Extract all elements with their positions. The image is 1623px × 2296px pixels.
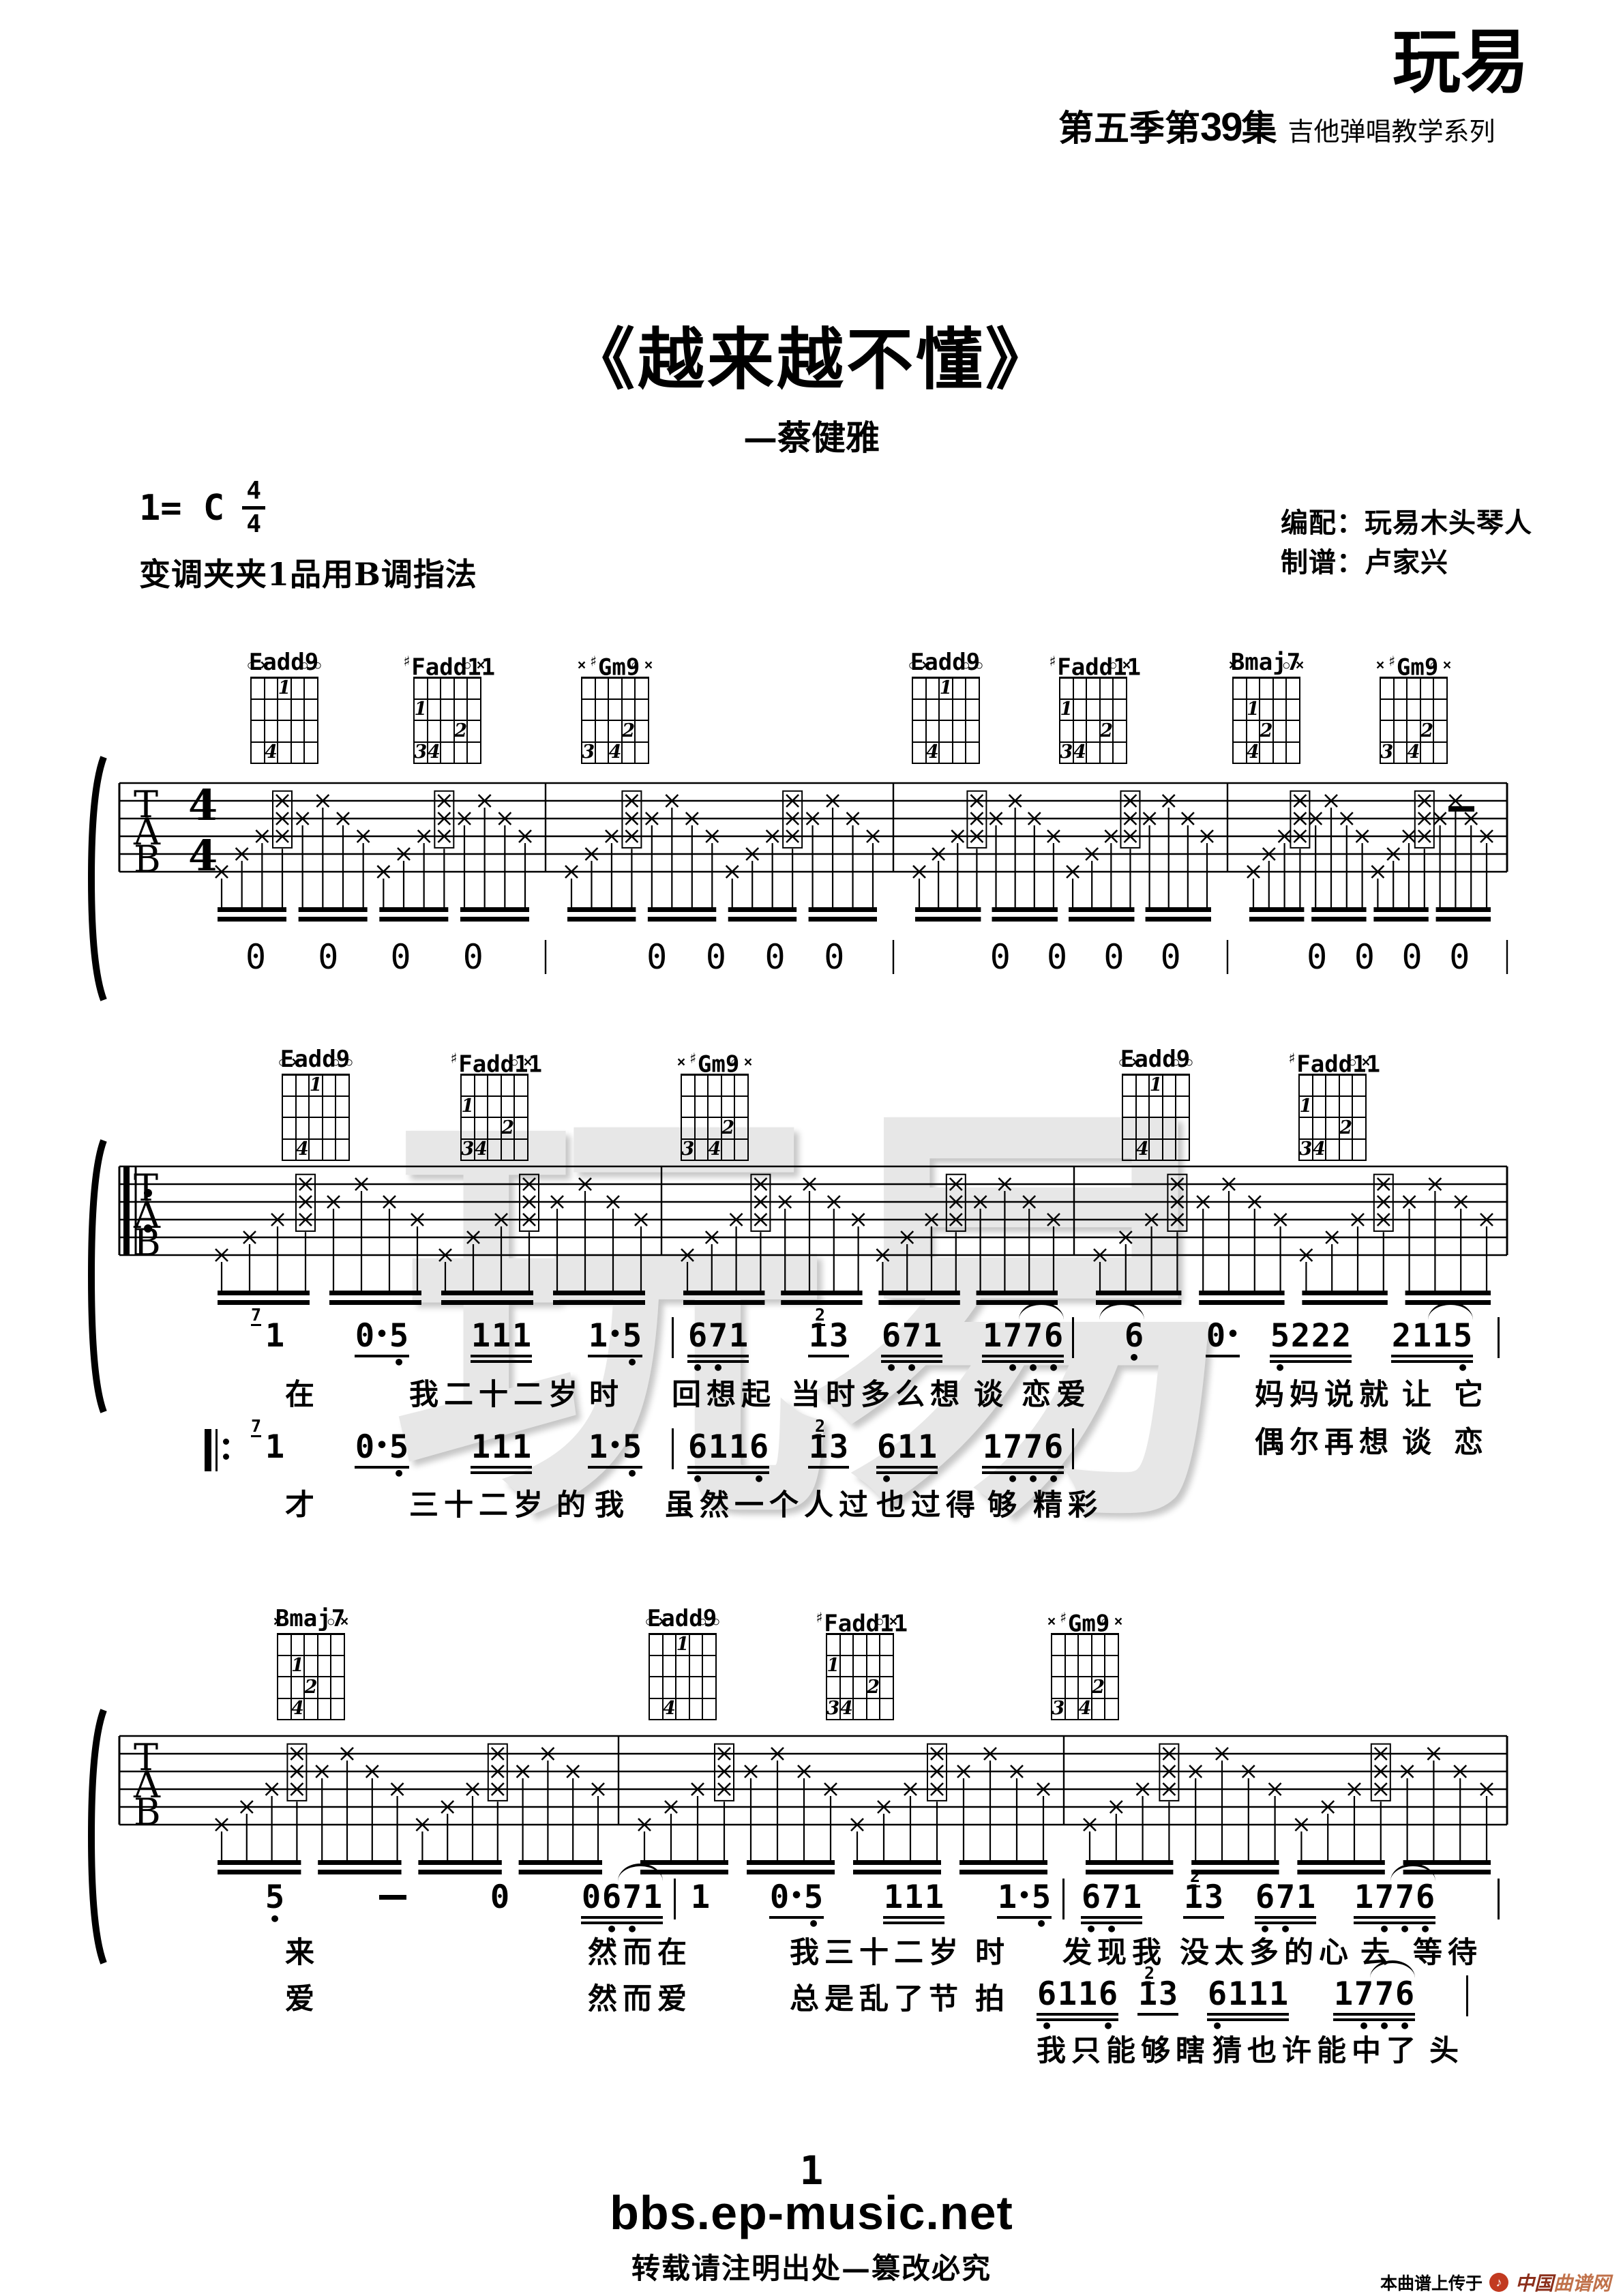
fret-line: [826, 1676, 894, 1677]
note-group-seg: 611•: [876, 1431, 938, 1486]
beam: [809, 907, 877, 912]
lyric-segment: 没太多的心: [1180, 1929, 1354, 1971]
open-string-zero: 0: [765, 937, 786, 977]
note-group: 0: [490, 1881, 510, 1914]
beam: [878, 1300, 959, 1305]
open-string-marker: ○: [297, 658, 311, 673]
finger-number: 2: [1092, 1678, 1105, 1696]
beam-underline: [1137, 2013, 1178, 2016]
note-digit: 1: [982, 1320, 1002, 1353]
note-group-seg: 1: [690, 1881, 711, 1914]
beam: [218, 907, 286, 912]
octave-dot: [1017, 1919, 1031, 1931]
note-digit: 1: [1122, 1881, 1142, 1914]
beam: [379, 917, 448, 922]
muted-string-marker: ×: [1045, 1615, 1058, 1630]
episode-number: 39: [1200, 104, 1242, 150]
note-digit: 6: [749, 1431, 769, 1464]
lyric-segment: 猜也许能中了: [1212, 2027, 1421, 2070]
octave-dot: •: [622, 1357, 642, 1370]
muted-string-marker: ×: [1293, 658, 1307, 673]
chord-grid: ×○×124: [277, 1633, 344, 1719]
chord-grid: ○×○○14: [282, 1074, 348, 1160]
beam: [553, 1300, 645, 1305]
fret-line: [1122, 1160, 1190, 1161]
beam: [1069, 907, 1134, 912]
lyric-segment: 然而在: [588, 1929, 692, 1971]
beam: [747, 1870, 835, 1874]
chord-grid: ×○×124: [1232, 677, 1299, 763]
note-group: 132: [1183, 1881, 1224, 1919]
open-string-marker: ○: [244, 658, 258, 673]
chord-diagram: ♯Fadd11○×1234: [449, 1045, 538, 1160]
fret-line: [1122, 1138, 1190, 1140]
time-sig-denominator: 4: [188, 831, 218, 881]
note-digit: 1: [1248, 1978, 1268, 2011]
fret-line: [1298, 1074, 1367, 1076]
lyric-segment: 恋爱: [1022, 1371, 1091, 1413]
lyric-segment: 回想起: [672, 1371, 776, 1413]
fret-line: [1380, 677, 1448, 679]
song-artist: —蔡健雅: [0, 411, 1623, 460]
note-digit: 1: [728, 1320, 749, 1353]
series-tagline: 吉他弹唱教学系列: [1288, 111, 1495, 148]
beam: [567, 917, 636, 922]
tab-clef-letter: B: [134, 1221, 161, 1264]
finger-number: 1: [1299, 1097, 1313, 1115]
finger-number: 2: [1420, 722, 1434, 740]
beam-underline: [883, 1916, 944, 1919]
note-digit: 1: [1333, 1978, 1354, 2011]
chord-grid: ○×○○14: [649, 1633, 715, 1719]
fret-line: [250, 741, 318, 743]
note-digit: 6: [1207, 1978, 1227, 2011]
note-group: 671••: [1255, 1881, 1316, 1937]
note-digits: 0671: [581, 1881, 663, 1914]
note-digit: 7: [1354, 1978, 1374, 2011]
note-digits: 5: [265, 1881, 285, 1914]
beam: [1373, 917, 1428, 922]
chord-grid: ○×1234: [1059, 677, 1126, 763]
note-digits: 111: [471, 1320, 532, 1353]
chord-diagram: Eadd9○×○○14: [638, 1604, 726, 1719]
muted-string-marker: ×: [642, 658, 655, 673]
series-suffix: 集: [1242, 100, 1277, 151]
fret-line: [912, 741, 980, 743]
note-digit: 6: [1081, 1881, 1101, 1914]
lyric-segment: 谈: [974, 1371, 1009, 1413]
measure-bar: [1498, 1879, 1500, 1919]
fret-line: [1051, 1655, 1119, 1656]
note-group: 671••: [1081, 1881, 1142, 1937]
note-group: 132: [808, 1431, 849, 1469]
fret-line: [649, 1655, 717, 1656]
note-digit: 5: [1270, 1320, 1290, 1353]
note-digit: 1: [1412, 1320, 1432, 1353]
note-digit: 6: [1043, 1320, 1064, 1353]
chord-diagram: Eadd9○×○○14: [1111, 1045, 1200, 1160]
open-string-marker: ○: [1279, 658, 1293, 673]
note-group-seg: 671••: [1081, 1881, 1142, 1937]
note-digit: 5: [389, 1431, 409, 1464]
lyric-segment: 爱: [285, 1975, 320, 2018]
chord-diagram: Bmaj7×○×124: [266, 1604, 355, 1719]
octave-dots-row: •: [355, 1357, 409, 1370]
note-digit: 7: [1275, 1881, 1296, 1914]
chord-diagram: ♯Gm9×○×234: [570, 648, 659, 763]
chord-diagram: ♯Fadd11○×1234: [402, 648, 491, 763]
note-digit: 5: [1031, 1881, 1052, 1914]
measure-bar: [1062, 1879, 1064, 1919]
fret-line: [413, 720, 481, 721]
note-digit: 6: [881, 1320, 902, 1353]
note-digits: 1776: [982, 1431, 1064, 1464]
fraction-bar: [242, 506, 265, 510]
qupu-site-icon: ♪: [1489, 2273, 1508, 2292]
note-digit: 1: [924, 1881, 944, 1914]
note-group-seg: 671••: [1255, 1881, 1316, 1937]
fret-line: [681, 1160, 749, 1161]
note-digit: 1: [690, 1881, 711, 1914]
muted-string-marker: ×: [1112, 1615, 1125, 1630]
note-digit: 7: [1374, 1978, 1395, 2011]
chord-grid: ○×1234: [1298, 1074, 1365, 1160]
beam: [218, 917, 286, 922]
beam: [915, 907, 981, 912]
open-string-marker: ○: [324, 1615, 338, 1630]
open-string-marker: ○: [642, 1615, 656, 1630]
finger-number: 4: [708, 1140, 721, 1158]
lyric-segment: 拍: [975, 1975, 1010, 2018]
finger-number: 2: [721, 1119, 735, 1137]
upload-credit-line: 本曲谱上传于 ♪ 中国曲谱网: [1380, 2269, 1611, 2296]
octave-dot: •: [389, 1357, 409, 1370]
note-digit: 2: [1311, 1320, 1331, 1353]
chord-grid: ○×1234: [460, 1074, 527, 1160]
measure-bar: [672, 1317, 674, 1358]
chord-grid: ×○×234: [1380, 677, 1446, 763]
note-digit: 1: [491, 1431, 511, 1464]
octave-dot: [355, 1357, 375, 1370]
fret-line: [581, 763, 649, 764]
note-group: 0•5•: [355, 1431, 409, 1481]
tab-clef-letter: B: [134, 1791, 161, 1834]
note-group: 17: [265, 1320, 285, 1353]
tab-clef-letter: B: [134, 838, 161, 881]
time-sig-numerator: 4: [188, 780, 218, 830]
fret-line: [581, 698, 649, 700]
beam: [441, 1300, 533, 1305]
system-bracket: [91, 757, 104, 1000]
duration-dash: [379, 1895, 406, 1900]
finger-number: 1: [414, 700, 428, 718]
note-group-seg: 0•5•: [769, 1881, 824, 1931]
muted-string-marker: ×: [1359, 1055, 1373, 1070]
lyric-segment: 的: [556, 1482, 591, 1524]
augmentation-dot: •: [1017, 1881, 1031, 1914]
finger-number: 4: [1312, 1140, 1326, 1158]
sharp-sign: ♯: [1059, 1610, 1068, 1627]
finger-number: 3: [461, 1140, 475, 1158]
note-digit: 0: [581, 1881, 601, 1914]
chord-diagram: Eadd9○×○○14: [901, 648, 989, 763]
note-group: 1776•••: [1333, 1978, 1415, 2033]
note-digits: 6116: [1037, 1978, 1118, 2011]
repeat-thick-bar: [123, 1166, 130, 1255]
open-string-marker: ○: [628, 658, 642, 673]
finger-number: 1: [1060, 700, 1073, 718]
beam: [299, 907, 368, 912]
note-digit: 7: [902, 1320, 922, 1353]
beam: [418, 1870, 501, 1874]
beam: [878, 1291, 959, 1295]
chord-diagram: ♯Gm9×○×234: [670, 1045, 758, 1160]
beam: [1249, 907, 1304, 912]
note-digits: 2115: [1391, 1320, 1473, 1353]
note-digits: 1776: [982, 1320, 1064, 1353]
finger-number: 3: [827, 1699, 840, 1718]
finger-number: 3: [582, 743, 595, 761]
beam: [218, 1291, 310, 1295]
note-digit: 5: [803, 1881, 824, 1914]
note-digit: 17: [265, 1431, 285, 1464]
beam: [553, 1291, 645, 1295]
lyric-segment: 才: [285, 1482, 320, 1524]
beam: [640, 1860, 728, 1865]
note-group: 6•: [1124, 1320, 1144, 1365]
beam: [1436, 917, 1491, 922]
note-digits: 0: [490, 1881, 510, 1914]
sharp-sign: ♯: [1287, 1050, 1296, 1068]
lyric-segment: 偶尔再想: [1255, 1419, 1394, 1461]
qupu-site-name-1: 中国: [1515, 2273, 1553, 2294]
octave-dot: [769, 1919, 790, 1931]
note-digit: 6: [687, 1431, 708, 1464]
note-group-seg: 6116••: [687, 1431, 769, 1486]
beam: [1311, 917, 1366, 922]
beam: [1069, 917, 1134, 922]
open-string-zero: 0: [1047, 937, 1067, 977]
measure-bar: [672, 1428, 674, 1469]
note-group-seg: 2115•: [1391, 1320, 1473, 1375]
finger-number: 2: [1339, 1119, 1353, 1137]
note-digits: 132: [808, 1431, 849, 1464]
note-group: 111: [471, 1431, 532, 1474]
muted-string-marker: ×: [338, 1615, 351, 1630]
beam: [1086, 1870, 1173, 1874]
open-string-zero: 0: [706, 937, 726, 977]
note-digits: 6: [1124, 1320, 1144, 1353]
fret-line: [681, 1074, 749, 1076]
fret-line: [1380, 720, 1448, 721]
open-string-marker: ○: [1345, 1055, 1359, 1070]
note-digits: 671: [1255, 1881, 1316, 1914]
sharp-sign: ♯: [815, 1610, 824, 1627]
finger-number: 4: [1407, 743, 1420, 761]
note-group-seg: 0671••: [581, 1881, 663, 1937]
fret-line: [681, 1095, 749, 1097]
note-digit: 2: [1290, 1320, 1311, 1353]
key-signature: 1= C 4 4: [139, 479, 265, 537]
fret-line: [912, 720, 980, 721]
chord-diagram: Eadd9○×○○14: [271, 1045, 359, 1160]
note-digit: 6: [687, 1320, 708, 1353]
fret-line: [250, 698, 318, 700]
note-digits: 1•5: [997, 1881, 1052, 1914]
credits: 编配：玩易木头琴人 制谱：卢家兴: [1281, 503, 1532, 583]
octave-dot: •: [622, 1469, 642, 1481]
fret-line: [1051, 1633, 1119, 1635]
beam: [853, 1870, 941, 1874]
note-digit: 5: [1453, 1320, 1473, 1353]
lyric-segment: 谈: [1402, 1419, 1437, 1461]
fret-line: [277, 1655, 345, 1656]
fret-line: [282, 1160, 350, 1161]
fret-line: [250, 720, 318, 721]
note-digit: 1: [1354, 1881, 1374, 1914]
note-group-seg: 1776•••: [982, 1431, 1064, 1486]
octave-dot: [355, 1469, 375, 1481]
open-string-zero: 0: [463, 937, 483, 977]
augmentation-dot: •: [608, 1320, 622, 1353]
lyric-segment: 然而爱: [588, 1975, 692, 2018]
finger-number: 1: [461, 1097, 475, 1115]
half-rest-dash: [1448, 806, 1474, 812]
note-digit: 1: [922, 1320, 942, 1353]
lyric-segment: 我二十二岁: [409, 1371, 583, 1413]
fret-line: [282, 1095, 350, 1097]
note-group: 0•5•: [769, 1881, 824, 1931]
lyric-segment: 精彩: [1033, 1482, 1103, 1524]
fret-line: [413, 677, 481, 679]
open-string-zero: 0: [1354, 937, 1375, 977]
note-digit: 0: [1206, 1320, 1226, 1353]
beam: [683, 1300, 764, 1305]
open-string-marker: ○: [507, 1055, 521, 1070]
beam: [1311, 907, 1366, 912]
lyric-segment: 妈妈说就: [1255, 1371, 1394, 1413]
note-digits: 0•5: [355, 1431, 409, 1464]
fret-line: [282, 1138, 350, 1140]
finger-number: 1: [827, 1656, 840, 1675]
beam-underline: [581, 1916, 663, 1919]
note-group: 17: [265, 1431, 285, 1464]
chord-diagram: ♯Gm9×○×234: [1369, 648, 1457, 763]
chord-grid: ○×○○14: [912, 677, 979, 763]
note-digit: 7: [1101, 1881, 1122, 1914]
beam-underline: [471, 1466, 532, 1469]
note-group: 1•5•: [997, 1881, 1052, 1931]
measure-bar: [674, 1879, 676, 1919]
note-digit: 1: [917, 1431, 938, 1464]
beam-underline: [808, 1355, 849, 1357]
note-group-seg: 6111•: [1207, 1978, 1289, 2033]
note-group: 5•: [265, 1881, 285, 1926]
beam: [1297, 1870, 1384, 1874]
note-group-seg: 1•5•: [588, 1320, 642, 1370]
open-string-marker: ○: [1182, 1055, 1196, 1070]
note-group-seg: 1•5•: [588, 1431, 642, 1481]
note-digit: 5: [622, 1320, 642, 1353]
finger-number: 1: [939, 679, 953, 697]
lyric-segment: 我三十二岁: [790, 1929, 964, 1971]
note-group-seg: 5•: [265, 1881, 285, 1926]
open-string-marker: ○: [460, 658, 474, 673]
muted-string-marker: ×: [289, 1055, 303, 1070]
beam: [379, 907, 448, 912]
chord-diagram: ♯Fadd11○×1234: [815, 1604, 904, 1719]
octave-dot: [608, 1469, 622, 1481]
note-digits: 111: [883, 1881, 944, 1914]
note-digit: 0: [355, 1320, 375, 1353]
open-string-zero: 0: [1449, 937, 1470, 977]
octave-dot: [375, 1469, 389, 1481]
beam: [1096, 1291, 1181, 1295]
fret-line: [649, 1698, 717, 1699]
chord-diagram: Eadd9○×○○14: [239, 648, 328, 763]
beam: [648, 907, 716, 912]
muted-string-marker: ×: [887, 1615, 900, 1630]
time-numerator: 4: [246, 479, 261, 503]
fret-line: [649, 1719, 717, 1720]
lyric-segment: 等待: [1413, 1929, 1483, 1971]
open-string-marker: ○: [311, 658, 325, 673]
beam-underline: [471, 1360, 532, 1363]
note-digit: 1: [728, 1431, 749, 1464]
site-url: bbs.ep-music.net: [0, 2185, 1623, 2240]
fret-line: [581, 677, 649, 679]
note-digits: 1•5: [588, 1320, 642, 1353]
beam: [992, 917, 1058, 922]
finger-number: 1: [676, 1635, 689, 1653]
note-digit: 1: [1077, 1978, 1098, 2011]
beam: [683, 1291, 764, 1295]
finger-number: 1: [1246, 700, 1260, 718]
note-group-seg: 6•: [1124, 1320, 1144, 1365]
fret-line: [277, 1698, 345, 1699]
note-group-seg: 132: [1183, 1881, 1224, 1919]
song-title: 《越来越不懂》: [0, 306, 1623, 402]
note-group-seg: 671••: [687, 1320, 749, 1375]
note-digit: 1: [1057, 1978, 1077, 2011]
lyric-segment: 它: [1454, 1371, 1489, 1413]
finger-number: 2: [1260, 722, 1273, 740]
note-group: 111: [883, 1881, 944, 1924]
octave-dot: [588, 1469, 608, 1481]
finger-number: 4: [474, 1140, 488, 1158]
lyric-segment: 三十二岁: [409, 1482, 548, 1524]
chord-grid: ○×1234: [413, 677, 480, 763]
fret-line: [1232, 698, 1300, 700]
note-digits: 0•5: [355, 1320, 409, 1353]
open-string-marker: ○: [959, 658, 972, 673]
note-group-seg: 0•5•: [355, 1320, 409, 1370]
note-digits: 6111: [1207, 1978, 1289, 2011]
open-string-zero: 0: [646, 937, 667, 977]
note-digit: 1: [471, 1431, 491, 1464]
beam-underline: [471, 1471, 532, 1474]
fret-line: [1298, 1117, 1367, 1118]
muted-string-marker: ×: [521, 1055, 535, 1070]
finger-number: 4: [925, 743, 939, 761]
capo-note: 变调夹夹1品用B调指法: [139, 550, 477, 595]
beam: [1373, 907, 1428, 912]
note-group: 671••: [881, 1320, 942, 1375]
beam: [218, 1870, 301, 1874]
credit-transcriber: 制谱：卢家兴: [1281, 543, 1532, 583]
series-prefix: 第五季第: [1058, 100, 1200, 151]
finger-number: 1: [278, 679, 291, 697]
